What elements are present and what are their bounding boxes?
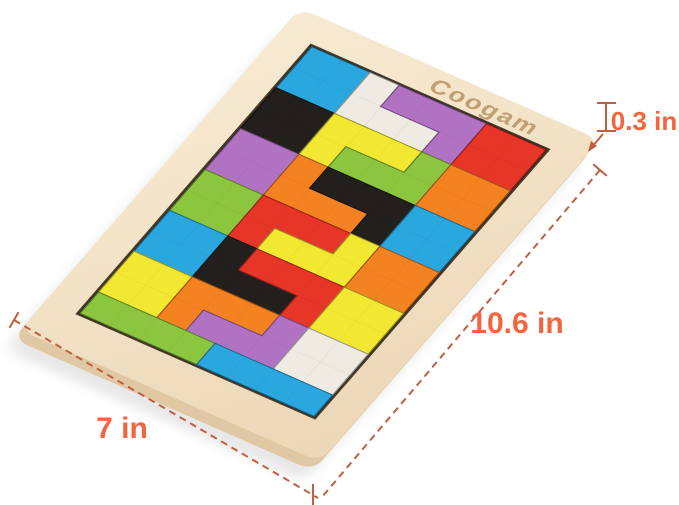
width-dimension-label: 7 in bbox=[96, 412, 148, 445]
product-photo-svg: Coogam 7 in 10.6 in 0.3 in bbox=[0, 0, 679, 505]
height-dimension-label: 10.6 in bbox=[470, 307, 563, 340]
product-image: Coogam 7 in 10.6 in 0.3 in bbox=[0, 0, 679, 505]
thickness-dimension-label: 0.3 in bbox=[611, 106, 677, 136]
